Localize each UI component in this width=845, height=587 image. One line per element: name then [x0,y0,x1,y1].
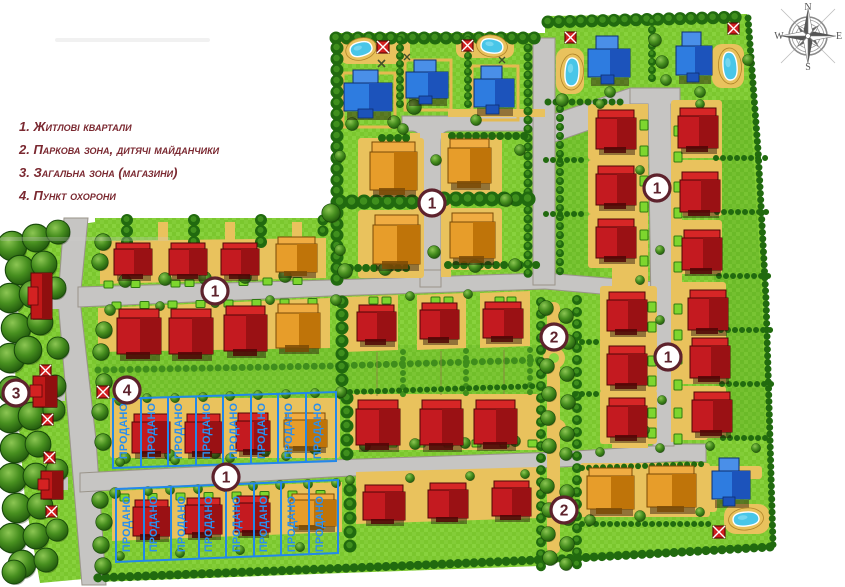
svg-text:1: 1 [211,284,220,301]
svg-text:3. Загальна зона (магазини): 3. Загальна зона (магазини) [19,165,177,180]
svg-text:ПРОДАНО: ПРОДАНО [314,496,326,552]
svg-text:1: 1 [664,350,673,367]
svg-text:ПРОДАНО: ПРОДАНО [283,403,295,459]
svg-text:ПРОДАНО: ПРОДАНО [146,403,158,459]
svg-text:1: 1 [428,196,437,213]
svg-text:ПРОДАНО: ПРОДАНО [256,403,268,459]
svg-text:1: 1 [653,181,662,198]
svg-text:1: 1 [222,470,231,487]
svg-text:ПРОДАНО: ПРОДАНО [118,403,130,459]
svg-text:ПРОДАНО: ПРОДАНО [312,403,324,459]
svg-text:ПРОДАНО: ПРОДАНО [286,496,298,552]
svg-text:W: W [774,31,784,42]
svg-text:3: 3 [12,386,21,403]
svg-text:2. Паркова зона, дитячі майдан: 2. Паркова зона, дитячі майданчики [18,142,220,157]
svg-text:ПРОДАНО: ПРОДАНО [148,496,160,552]
svg-text:ПРОДАНО: ПРОДАНО [201,403,213,459]
svg-text:4. Пункт охорони: 4. Пункт охорони [18,188,116,203]
svg-text:ПРОДАНО: ПРОДАНО [203,496,215,552]
svg-text:4: 4 [123,383,132,400]
svg-text:ПРОДАНО: ПРОДАНО [121,496,133,552]
svg-text:ПРОДАНО: ПРОДАНО [258,496,270,552]
svg-text:ПРОДАНО: ПРОДАНО [231,496,243,552]
svg-text:ПРОДАНО: ПРОДАНО [176,496,188,552]
svg-text:S: S [805,62,811,73]
svg-text:1. Житлові квартали: 1. Житлові квартали [19,119,132,134]
svg-text:2: 2 [560,503,569,520]
svg-text:E: E [836,31,842,42]
svg-text:2: 2 [550,330,559,347]
svg-text:ПРОДАНО: ПРОДАНО [173,403,185,459]
svg-text:N: N [804,2,811,13]
svg-text:ПРОДАНО: ПРОДАНО [228,403,240,459]
